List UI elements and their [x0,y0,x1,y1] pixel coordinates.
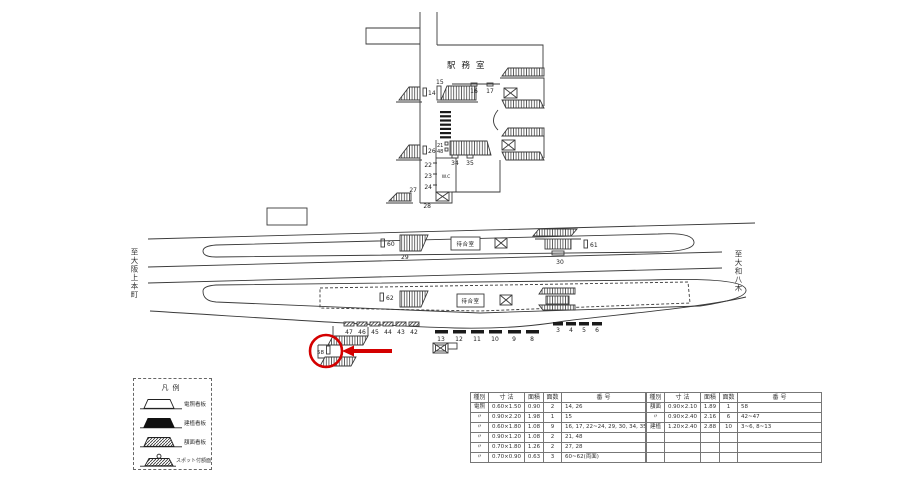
legend-item-spot-board: スポット付額面 [138,452,211,469]
cell: 2 [544,433,562,443]
cell: 14, 26 [562,403,646,413]
sign-10-label: 10 [491,336,499,343]
sign-12-label: 12 [455,336,463,343]
cell: 0.90×2.10 [665,403,701,413]
sign-43-label: 43 [397,329,405,336]
legend-item-illuminated: 電照看板 [138,395,211,412]
cell: 10 [720,423,738,433]
cell [738,443,822,453]
sign-34-label: 34 [451,160,459,167]
cell: 0.60×1.80 [489,423,525,433]
annex-outline [366,28,420,44]
sign-26-icon [423,146,427,154]
cell [647,443,665,453]
sign-30-label: 30 [556,259,564,266]
table-row: 〃0.60×1.801.08916, 17, 22~24, 29, 30, 34… [471,423,646,433]
table-row: 建植1.20×2.402.88103~6, 8~13 [647,423,822,433]
sign-62-label: 62 [386,295,394,302]
tracks-and-platforms [148,208,755,328]
cell [647,433,665,443]
cell: 〃 [471,433,489,443]
sign-16-icon [471,83,477,86]
east-stairs-upper [500,68,544,108]
sign-4-label: 4 [569,327,573,334]
cell: 〃 [471,443,489,453]
cell: 0.70×0.90 [489,453,525,463]
cell: 6 [720,413,738,423]
sign-14-label: 14 [428,90,436,97]
cell: 2 [544,403,562,413]
stairs-icon [389,193,411,201]
sign-row-8-13: 13 12 11 10 9 8 [435,330,539,343]
cell: 2.16 [701,413,720,423]
col-type: 種別 [471,393,489,403]
sign-8-label: 8 [530,336,534,343]
sign-row-3-6: 3 4 5 6 [553,322,602,334]
cell: 3~6, 8~13 [738,423,822,433]
cell: 1 [720,403,738,413]
cell: 1.08 [525,423,544,433]
legend-box: 凡例 電照看板 建植看板 額面看板 [133,378,212,470]
legend-item-label: スポット付額面 [176,457,211,464]
table-row [647,443,822,453]
table-row: 電照0.60×1.500.90214, 26 [471,403,646,413]
sign-28-label: 28 [423,203,431,210]
cell: 1.20×2.40 [665,423,701,433]
col-number: 番 号 [738,393,822,403]
sign-3-label: 3 [556,327,560,334]
erected-sign-icon [138,415,184,430]
col-area: 面積 [525,393,544,403]
cell: 0.90 [525,403,544,413]
sign-17-label: 17 [486,88,494,95]
col-area: 面積 [701,393,720,403]
station-building: 駅務室 14 26 27 28 15 16 17 21 [366,12,544,210]
legend-item-board: 額面看板 [138,433,211,450]
station-office-label: 駅務室 [447,60,491,71]
cell: 27, 28 [562,443,646,453]
table-header-row: 種別 寸 法 面積 面数 番 号 [647,393,822,403]
sign-35-label: 35 [466,160,474,167]
col-count: 面数 [720,393,738,403]
cell: 16, 17, 22~24, 29, 30, 34, 35 [562,423,646,433]
cell [701,433,720,443]
spot-board-sign-icon [138,453,176,468]
board-sign-icon [138,434,184,449]
table-row [647,433,822,443]
waiting-room-upper-label: 待合室 [456,240,474,248]
sign-60-label: 60 [387,241,395,248]
col-number: 番 号 [562,393,646,403]
table-row: 〃0.90×2.201.98115 [471,413,646,423]
east-stairs-lower [502,128,544,160]
sign-47-label: 47 [345,329,353,336]
cell: 0.70×1.80 [489,443,525,453]
sign-44-label: 44 [384,329,392,336]
sign-16-label: 16 [470,88,478,95]
direction-left-label: 至大阪上本町 [129,248,140,299]
direction-right-label: 至大和八木 [733,250,744,293]
sign-45-label: 45 [371,329,379,336]
illuminated-sign-icon [138,396,184,411]
sign-35-icon [467,155,473,158]
sign-5-label: 5 [582,327,586,334]
stairs-icon [399,87,420,100]
waiting-room-lower-label: 待合室 [461,297,479,305]
sign-42-label: 42 [410,329,418,336]
col-type: 種別 [647,393,665,403]
sign-58-icon [327,346,331,354]
sign-14-icon [423,88,427,96]
cell: 1 [544,413,562,423]
sign-row-42-47: 47 46 45 44 43 42 [344,322,419,336]
table-row: 〃0.70×0.900.63360~62(両面) [471,453,646,463]
sign-15-icon [437,86,441,100]
col-size: 寸 法 [489,393,525,403]
col-size: 寸 法 [665,393,701,403]
cell [665,453,701,463]
cell: 1.89 [701,403,720,413]
table-row: 額面0.90×2.101.89158 [647,403,822,413]
cell: 58 [738,403,822,413]
station-signage-map: 駅務室 14 26 27 28 15 16 17 21 [0,0,919,491]
table-row: 〃0.70×1.801.26227, 28 [471,443,646,453]
sign-23-label: 23 [424,173,432,180]
cell: 3 [544,453,562,463]
sign-24-label: 24 [424,184,432,191]
cell: 〃 [471,413,489,423]
table-row [647,453,822,463]
cell: 60~62(両面) [562,453,646,463]
cell: 0.90×1.20 [489,433,525,443]
cell [665,433,701,443]
sign-29-label: 29 [401,254,409,261]
legend-item-label: 電照看板 [184,400,206,408]
cell: 21, 48 [562,433,646,443]
sign-spec-tables: 種別 寸 法 面積 面数 番 号 電照0.60×1.500.90214, 26 … [470,392,822,463]
building-bottom-outline [420,160,500,203]
legend-item-label: 額面看板 [184,438,206,446]
cell: 0.90×2.40 [665,413,701,423]
trackside-signs: 47 46 45 44 43 42 13 12 11 10 9 8 3 4 5 … [344,322,602,353]
escalator-icon [440,111,451,138]
sign-48-label: 48 [437,149,443,155]
sign-46-label: 46 [358,329,366,336]
cell: 0.90×2.20 [489,413,525,423]
cell: 9 [544,423,562,433]
cell [701,443,720,453]
cell [720,433,738,443]
cell: 1.98 [525,413,544,423]
spec-table-right: 種別 寸 法 面積 面数 番 号 額面0.90×2.101.89158 〃0.9… [646,392,822,463]
cell: 2.88 [701,423,720,433]
cell: 〃 [471,423,489,433]
sign-26-label: 26 [428,148,436,155]
upper-platform [203,234,694,257]
sign-21-icon [445,142,448,145]
table-row: 〃0.90×1.201.08221, 48 [471,433,646,443]
sign-17-icon [487,83,493,86]
cell: 1.08 [525,433,544,443]
legend-item-erected: 建植看板 [138,414,211,431]
double-sided-sign-icon [433,343,457,353]
legend-title: 凡例 [134,383,211,393]
cell: 15 [562,413,646,423]
cell: 建植 [647,423,665,433]
cell [738,433,822,443]
cell: 42~47 [738,413,822,423]
stairs-icon [399,145,420,158]
sign-15-label: 15 [436,79,444,86]
cell: 0.63 [525,453,544,463]
trackside-building [267,208,307,225]
sign-48-icon [445,148,448,151]
spec-table-left: 種別 寸 法 面積 面数 番 号 電照0.60×1.500.90214, 26 … [470,392,646,463]
sign-11-label: 11 [473,336,481,343]
cell: 1.26 [525,443,544,453]
cell [647,453,665,463]
cell: 〃 [647,413,665,423]
cell [720,443,738,453]
cell: 額面 [647,403,665,413]
wc-label: W.C [442,174,451,180]
sign-58-label: 58 [317,350,324,356]
legend-item-label: 建植看板 [184,419,206,427]
cell: 〃 [471,453,489,463]
cell [665,443,701,453]
stairs-icon [450,141,491,155]
cell [720,453,738,463]
cell: 電照 [471,403,489,413]
table-header-row: 種別 寸 法 面積 面数 番 号 [471,393,646,403]
stair-landing-outline [494,110,499,130]
cell: 2 [544,443,562,453]
cell [738,453,822,463]
cell [701,453,720,463]
sign-13-label: 13 [437,336,445,343]
cell: 0.60×1.50 [489,403,525,413]
sign-22-label: 22 [424,162,432,169]
double-sided-sign-icon [436,192,449,201]
sign-6-label: 6 [595,327,599,334]
table-row: 〃0.90×2.402.16642~47 [647,413,822,423]
highlight-arrow [342,346,392,357]
sign-9-label: 9 [512,336,516,343]
col-count: 面数 [544,393,562,403]
sign-61-label: 61 [590,242,598,249]
